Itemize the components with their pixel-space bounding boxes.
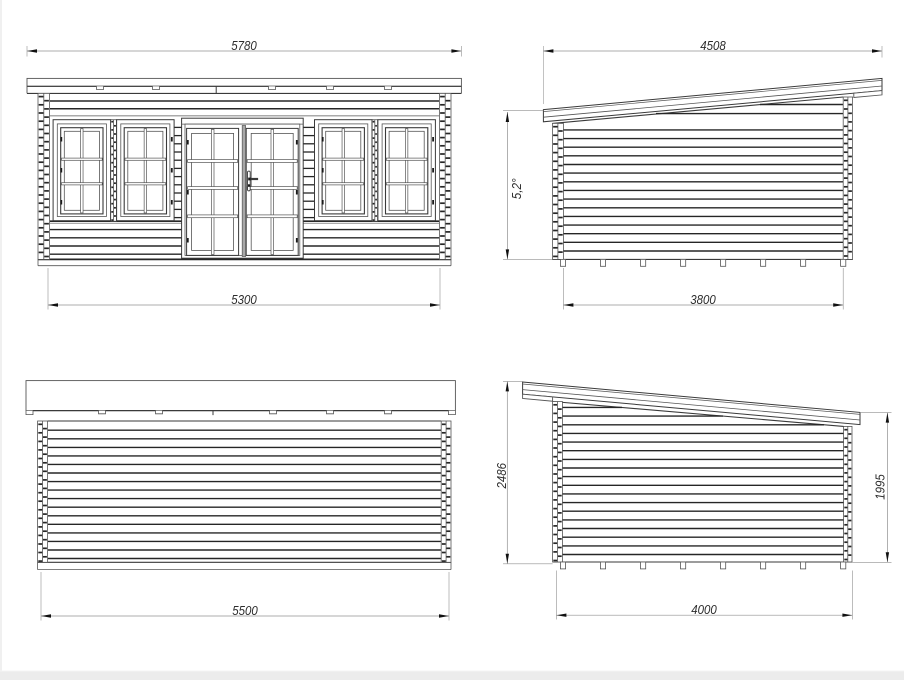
svg-text:1995: 1995 (872, 474, 887, 500)
svg-text:2486: 2486 (494, 462, 509, 489)
svg-text:5,2°: 5,2° (509, 178, 524, 199)
svg-text:3800: 3800 (690, 292, 716, 307)
svg-text:4508: 4508 (700, 38, 726, 53)
svg-text:5780: 5780 (231, 38, 257, 53)
svg-text:4000: 4000 (691, 602, 717, 617)
svg-text:5300: 5300 (231, 292, 257, 307)
svg-text:5500: 5500 (232, 603, 258, 618)
